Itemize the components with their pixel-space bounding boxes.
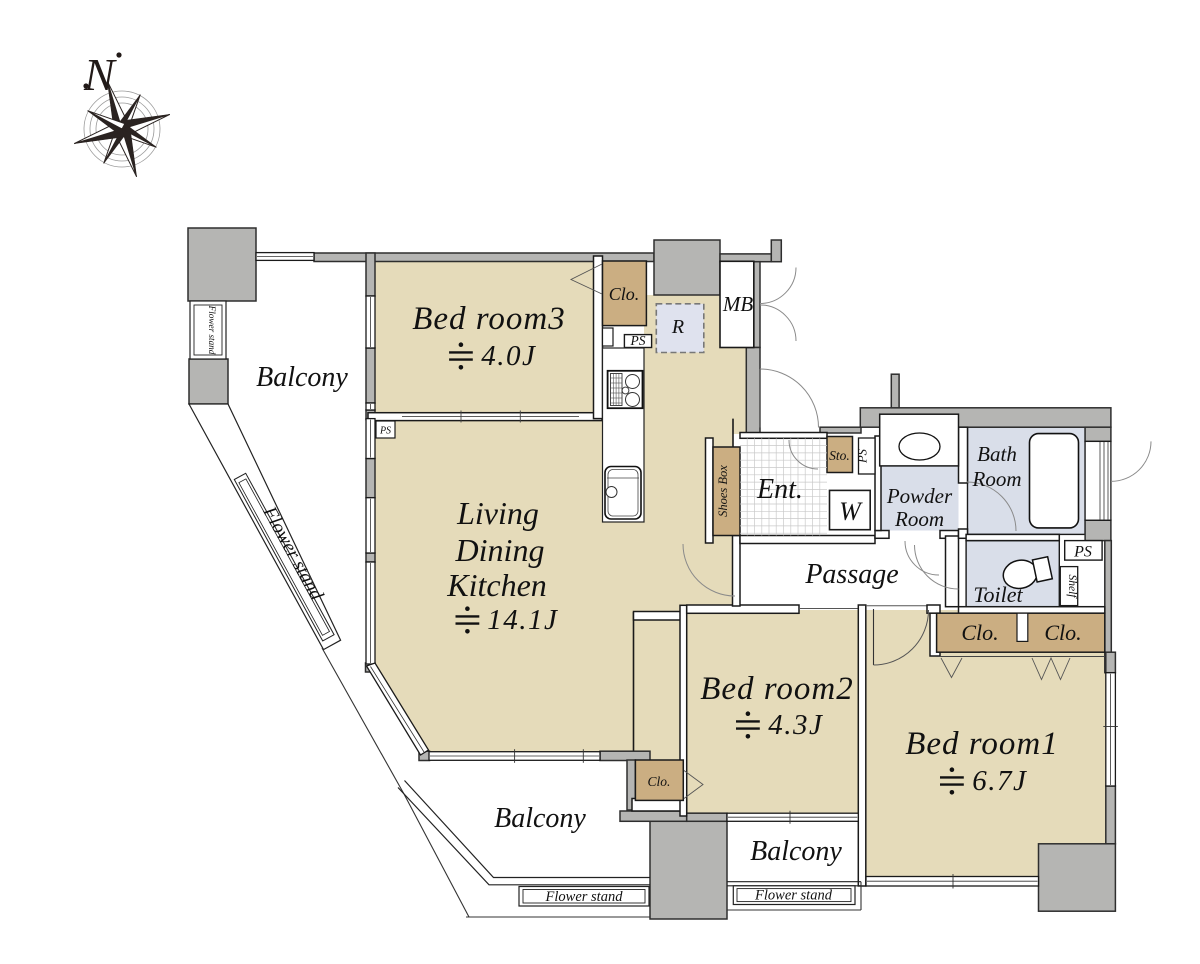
- svg-text:Bed room3: Bed room3: [412, 301, 566, 337]
- svg-text:6.7J: 6.7J: [972, 765, 1027, 797]
- svg-text:14.1J: 14.1J: [487, 604, 558, 636]
- svg-text:Balcony: Balcony: [494, 803, 586, 834]
- svg-text:PS: PS: [856, 448, 870, 464]
- svg-text:Shelf: Shelf: [1066, 575, 1078, 600]
- svg-text:PS: PS: [1073, 544, 1092, 561]
- svg-text:Powder: Powder: [886, 484, 953, 508]
- svg-text:PS: PS: [630, 333, 646, 348]
- svg-text:Clo.: Clo.: [648, 774, 671, 789]
- svg-text:Clo.: Clo.: [1044, 620, 1081, 645]
- svg-text:Room: Room: [894, 507, 944, 531]
- svg-text:Balcony: Balcony: [256, 362, 348, 393]
- svg-text:4.0J: 4.0J: [481, 340, 536, 372]
- svg-text:Toilet: Toilet: [973, 582, 1023, 607]
- svg-text:Dining: Dining: [455, 532, 545, 568]
- svg-text:MB: MB: [722, 292, 753, 316]
- svg-text:4.3J: 4.3J: [768, 709, 823, 741]
- svg-text:Sto.: Sto.: [829, 448, 850, 463]
- svg-text:W: W: [839, 497, 863, 526]
- svg-text:Ent.: Ent.: [756, 474, 803, 505]
- svg-text:Passage: Passage: [804, 559, 898, 590]
- svg-text:Living: Living: [456, 495, 539, 531]
- svg-text:Balcony: Balcony: [750, 836, 842, 867]
- svg-text:Flower stand: Flower stand: [545, 889, 624, 905]
- svg-text:Room: Room: [972, 467, 1022, 491]
- svg-text:Shoes Box: Shoes Box: [716, 465, 730, 517]
- svg-text:PS: PS: [379, 426, 391, 437]
- svg-text:N: N: [83, 49, 117, 100]
- svg-text:Bed room2: Bed room2: [700, 671, 854, 707]
- svg-text:Flower stand: Flower stand: [207, 305, 217, 355]
- svg-text:Bed room1: Bed room1: [905, 726, 1059, 762]
- svg-text:Bath: Bath: [977, 442, 1017, 466]
- svg-text:Clo.: Clo.: [609, 284, 640, 304]
- svg-text:Flower stand: Flower stand: [754, 888, 833, 904]
- svg-text:Kitchen: Kitchen: [446, 567, 547, 603]
- svg-text:Clo.: Clo.: [961, 620, 998, 645]
- svg-text:R: R: [671, 316, 684, 338]
